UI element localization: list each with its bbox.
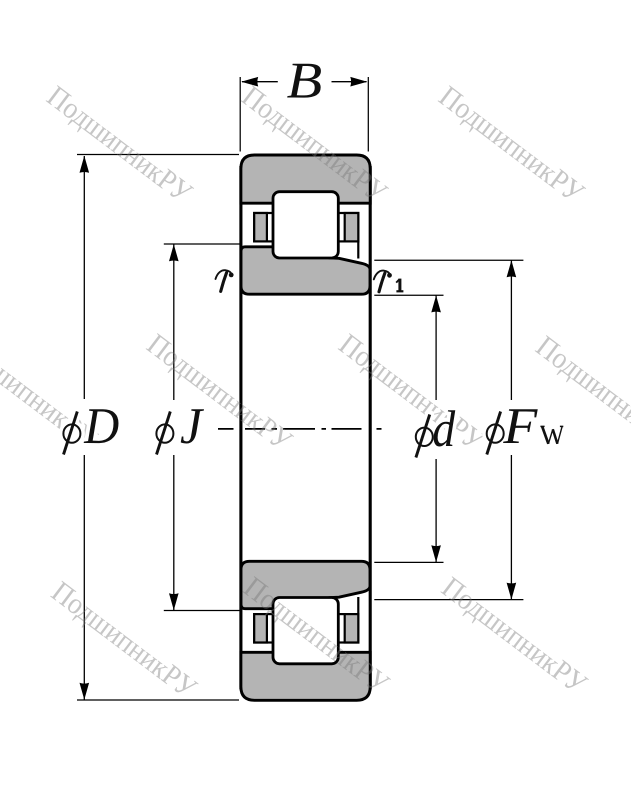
svg-text:d: d	[432, 401, 455, 458]
svg-text:J: J	[180, 398, 204, 455]
svg-text:B: B	[287, 53, 323, 110]
svg-text:F: F	[502, 398, 538, 455]
svg-text:D: D	[83, 398, 119, 455]
